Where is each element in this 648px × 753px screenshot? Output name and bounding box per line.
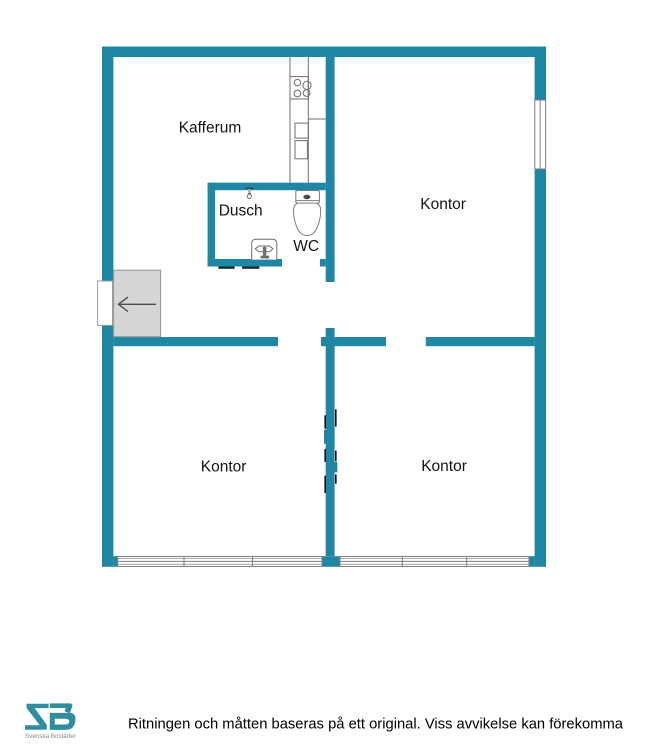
svg-text:Kontor: Kontor [201, 459, 247, 476]
svg-text:Ritningen och måtten baseras p: Ritningen och måtten baseras på ett orig… [128, 717, 623, 733]
svg-text:Kontor: Kontor [421, 458, 467, 475]
svg-text:Kafferum: Kafferum [179, 119, 242, 136]
svg-text:Dusch: Dusch [219, 203, 263, 220]
svg-text:WC: WC [293, 238, 319, 255]
svg-text:Svenska Bostäder: Svenska Bostäder [25, 733, 77, 740]
svg-text:Kontor: Kontor [420, 196, 466, 213]
